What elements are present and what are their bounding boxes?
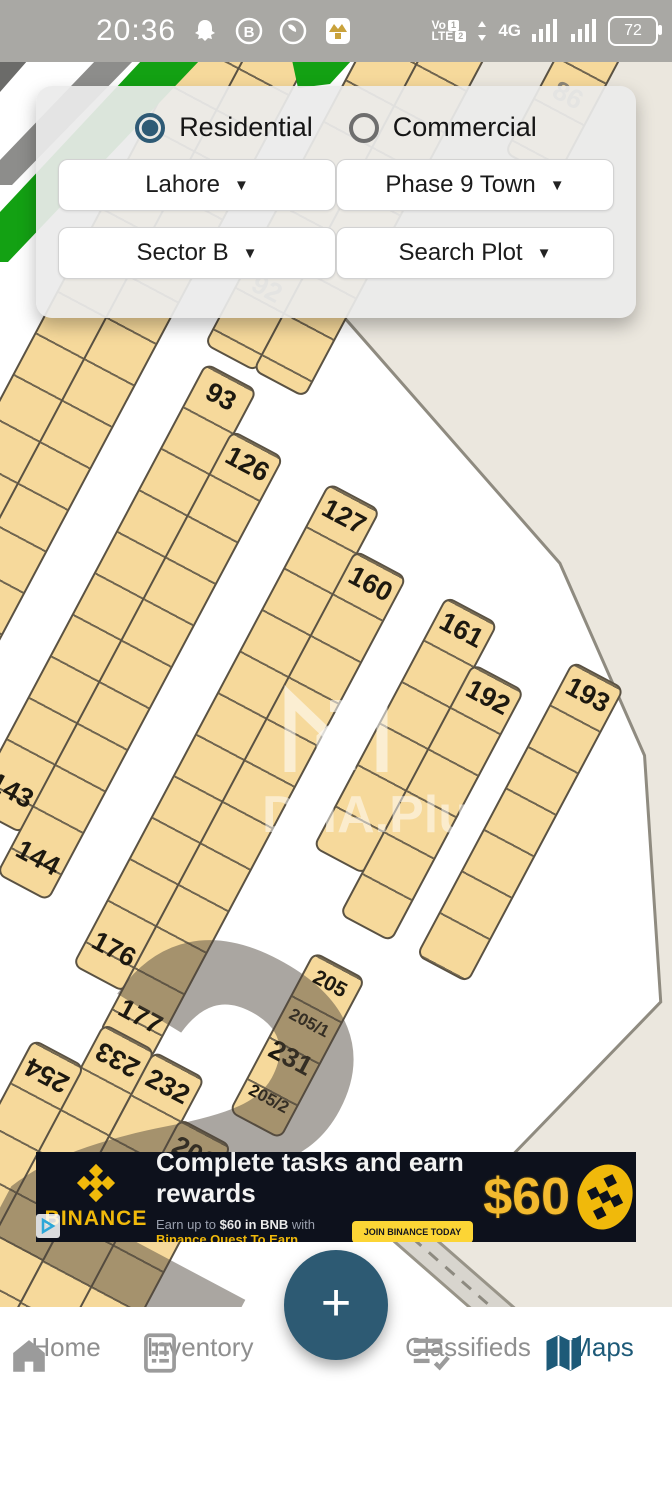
ad-subtext: Earn up to $60 in BNB with Binance Quest…: [156, 1217, 342, 1242]
radio-commercial[interactable]: Commercial: [349, 112, 537, 143]
plus-icon: +: [321, 1277, 351, 1329]
phase-dropdown[interactable]: Phase 9 Town ▼: [336, 159, 614, 211]
nav-item-inventory[interactable]: Inventory: [140, 1332, 260, 1363]
data-arrows-icon: [475, 19, 489, 43]
volte-indicator: Vo1 LTE2: [432, 20, 467, 42]
sector-dropdown[interactable]: Sector B ▼: [58, 227, 336, 279]
adchoices-icon[interactable]: [36, 1214, 60, 1238]
b-app-icon: B: [234, 16, 264, 46]
radio-selected-icon: [135, 113, 165, 143]
radio-unselected-icon: [349, 113, 379, 143]
inventory-icon: [140, 1332, 180, 1374]
network-type: 4G: [498, 21, 521, 41]
city-dropdown[interactable]: Lahore ▼: [58, 159, 336, 211]
plot-label-144: 144: [0, 825, 82, 891]
dha-app-notification-icon: [322, 15, 354, 47]
home-icon: [6, 1332, 52, 1374]
coin-icon: [574, 1161, 636, 1233]
search-plot-dropdown[interactable]: Search Plot ▼: [336, 227, 614, 279]
chevron-down-icon: ▼: [550, 177, 565, 194]
radio-residential[interactable]: Residential: [135, 112, 313, 143]
whatsapp-icon: [278, 16, 308, 46]
nav-item-maps[interactable]: Maps: [542, 1332, 662, 1363]
chevron-down-icon: ▼: [234, 177, 249, 194]
svg-text:B: B: [244, 24, 255, 41]
battery-indicator: 72: [608, 16, 658, 46]
app-screen: 92 86 93 143 126 144 127 176 160 17: [0, 0, 672, 1500]
classifieds-icon: [408, 1332, 454, 1374]
ad-cta-button[interactable]: JOIN BINANCE TODAY: [352, 1221, 474, 1242]
chevron-down-icon: ▼: [537, 245, 552, 262]
signal-bars-sim2-icon: [569, 18, 599, 44]
filter-card: Residential Commercial Lahore ▼ Phase 9 …: [36, 86, 636, 318]
snapchat-icon: [190, 16, 220, 46]
binance-brand-text: BINANCE: [45, 1207, 148, 1231]
nav-item-classifieds[interactable]: Classifieds: [408, 1332, 528, 1363]
ad-price-text: $60: [483, 1167, 570, 1227]
ad-headline: Complete tasks and earn rewards: [156, 1152, 473, 1209]
maps-icon: [542, 1332, 584, 1374]
nav-item-home[interactable]: Home: [6, 1332, 126, 1363]
signal-bars-sim1-icon: [530, 18, 560, 44]
chevron-down-icon: ▼: [243, 245, 258, 262]
binance-logo-icon: [76, 1163, 116, 1203]
clock: 20:36: [96, 14, 176, 48]
binance-ad-banner[interactable]: BINANCE Complete tasks and earn rewards …: [36, 1152, 636, 1242]
add-listing-fab[interactable]: +: [284, 1250, 388, 1360]
status-bar: 20:36 B Vo1 LTE2: [0, 0, 672, 62]
